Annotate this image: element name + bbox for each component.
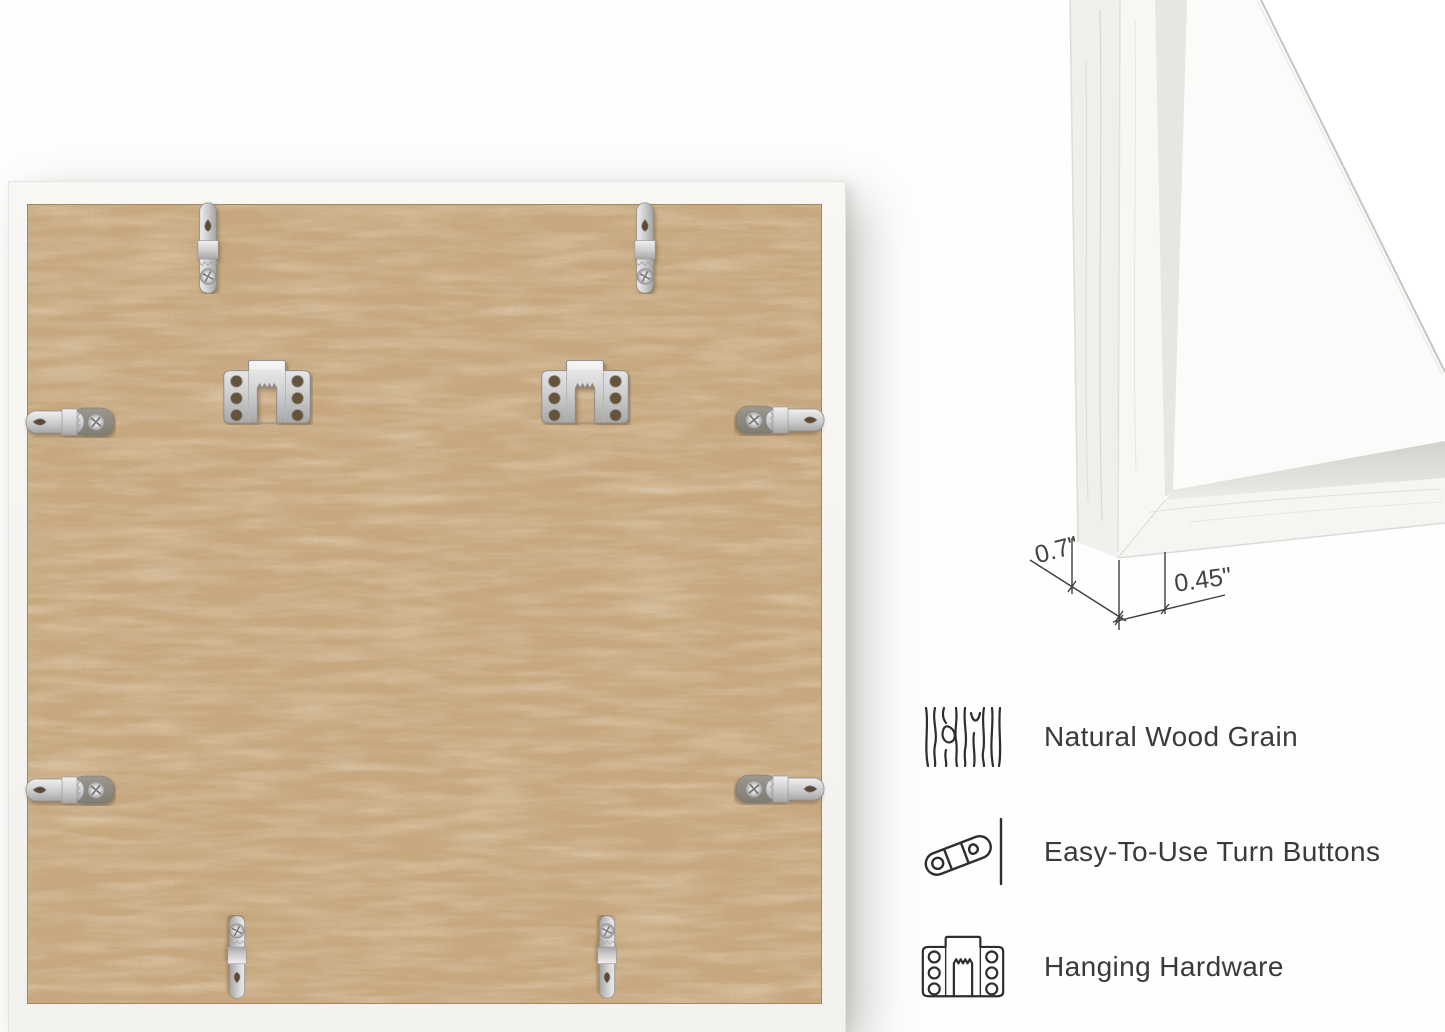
turn-button-right-bottom (734, 773, 826, 805)
depth-dimension-line (1030, 560, 1126, 621)
frame-back-photo (8, 181, 846, 1032)
sawtooth-hanger-left (221, 359, 313, 425)
hanging-tab-top-left (192, 202, 224, 294)
turn-button-icon (920, 818, 1006, 886)
mdf-texture (28, 205, 821, 1003)
hanging-tab-bottom-left (221, 915, 253, 999)
mdf-backing (27, 204, 822, 1004)
hanging-tab-bottom-right (591, 915, 623, 999)
feature-item-turn-buttons: Easy-To-Use Turn Buttons (920, 815, 1380, 889)
frame-corner-photo: 0.7" 0.45" (1000, 0, 1445, 650)
turn-button-left-bottom (24, 774, 116, 806)
hanging-hardware-icon (920, 935, 1006, 999)
turn-button-right-top (734, 404, 826, 436)
feature-item-wood-grain: Natural Wood Grain (920, 700, 1298, 774)
feature-label: Natural Wood Grain (1044, 721, 1298, 753)
face-dimension-line (1113, 595, 1225, 622)
wood-grain-icon (920, 707, 1006, 767)
feature-label: Hanging Hardware (1044, 951, 1284, 983)
feature-item-hanging-hardware: Hanging Hardware (920, 930, 1284, 1004)
depth-dimension-label: 0.7" (1032, 531, 1081, 569)
face-width-dimension-label: 0.45" (1173, 562, 1234, 598)
product-infographic: 0.7" 0.45" Natural Wood Grain (0, 0, 1445, 1032)
feature-label: Easy-To-Use Turn Buttons (1044, 836, 1380, 868)
turn-button-left-top (24, 406, 116, 438)
hanging-tab-top-right (629, 202, 661, 294)
sawtooth-hanger-right (539, 359, 631, 425)
